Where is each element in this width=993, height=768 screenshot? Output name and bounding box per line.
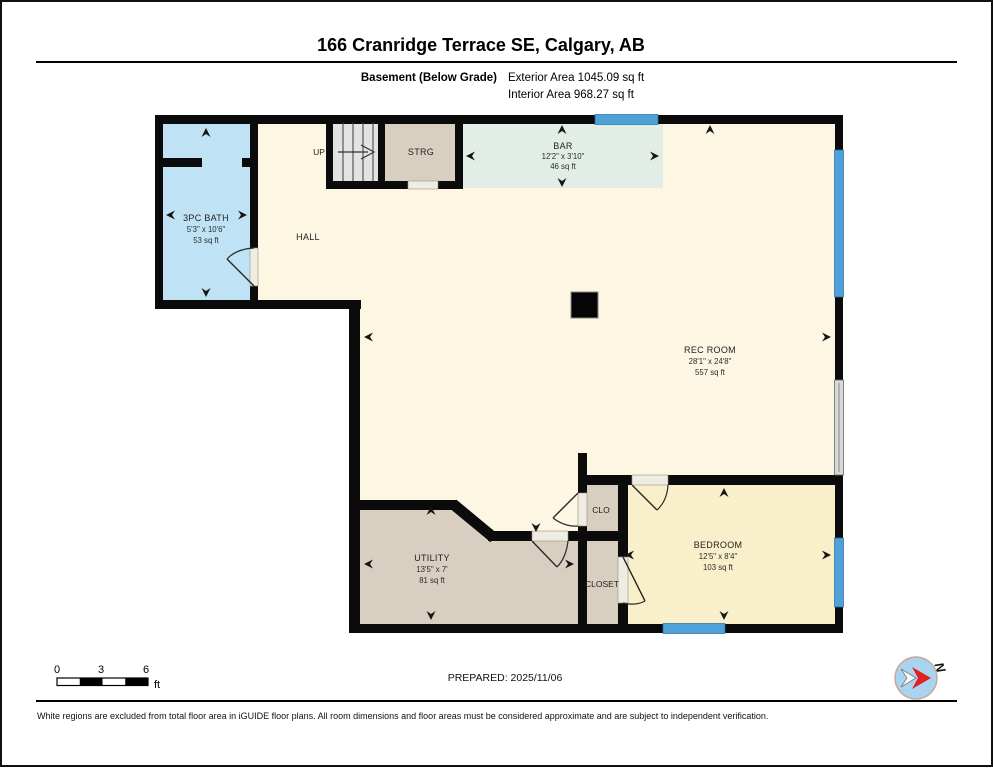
door-gap-bedroom: [632, 475, 668, 485]
scale-bar-segment: [80, 678, 103, 686]
wall-stairs-left: [326, 122, 333, 182]
bath-area: 53 sq ft: [193, 236, 219, 245]
scale-unit: ft: [154, 679, 160, 691]
wall-bath-stub-right: [242, 158, 258, 167]
wall-closet-right-upper: [618, 485, 628, 557]
strg-name: STRG: [408, 147, 434, 157]
scale-bar: 0 3 6 ft: [54, 664, 160, 691]
wall-closet-right-lower: [618, 603, 628, 633]
window-bedroom-bottom: [663, 624, 725, 634]
floor-label: Basement (Below Grade): [361, 72, 497, 84]
bath-dims: 5'3" x 10'6": [187, 225, 226, 234]
utility-name: UTILITY: [414, 553, 450, 563]
door-gap-clo: [578, 493, 587, 526]
wall-clo-left-upper: [578, 485, 587, 493]
bedroom-area: 103 sq ft: [703, 563, 734, 572]
wall-bath-right-lower: [250, 286, 258, 302]
door-gap-strg: [408, 181, 438, 189]
rec-room-name: REC ROOM: [684, 345, 736, 355]
bar-area: 46 sq ft: [550, 162, 576, 171]
prepared-date: PREPARED: 2025/11/06: [448, 672, 563, 684]
door-gap-utility: [532, 531, 568, 541]
floor-plan-page: 166 Cranridge Terrace SE, Calgary, AB Ba…: [0, 0, 993, 768]
wall-stairs-right: [378, 122, 385, 182]
bedroom-name: BEDROOM: [694, 540, 743, 550]
clo-name: CLO: [592, 505, 610, 515]
wall-bath-stub-left: [163, 158, 202, 167]
structural-post: [571, 292, 598, 318]
wall-clo-stub: [578, 453, 587, 477]
wall-bedroom-top-right: [668, 475, 835, 485]
wall-strg-bottom: [438, 181, 463, 189]
rec-room-dims: 28'1" x 24'8": [689, 357, 732, 366]
wall-strg-right: [455, 122, 463, 182]
scale-tick-3: 3: [98, 664, 104, 676]
compass-north-label: N: [931, 660, 949, 675]
wall-top: [155, 115, 843, 124]
wall-bottom: [349, 624, 843, 633]
bath-name: 3PC BATH: [183, 213, 229, 223]
wall-utility-top: [349, 500, 457, 510]
disclaimer-text: White regions are excluded from total fl…: [37, 711, 768, 721]
exterior-area-label: Exterior Area 1045.09 sq ft: [508, 72, 645, 84]
wall-mid-vertical: [349, 300, 360, 633]
hall-name: HALL: [296, 232, 320, 242]
scale-bar-segment: [125, 678, 148, 686]
closet-name: CLOSET: [585, 579, 619, 589]
utility-dims: 13'5" x 7': [416, 565, 448, 574]
bar-dims: 12'2" x 3'10": [542, 152, 585, 161]
door-gap-bath: [250, 248, 258, 286]
rec-room-area: 557 sq ft: [695, 368, 726, 377]
stairs-up-label: UP: [313, 147, 325, 157]
compass-icon: N: [895, 657, 949, 699]
interior-area-label: Interior Area 968.27 sq ft: [508, 89, 635, 101]
scale-tick-6: 6: [143, 664, 149, 676]
scale-tick-0: 0: [54, 664, 60, 676]
bar-name: BAR: [553, 141, 573, 151]
bath-floor: [163, 122, 250, 300]
header: 166 Cranridge Terrace SE, Calgary, AB Ba…: [36, 35, 957, 101]
window-rec-right: [835, 150, 844, 297]
bedroom-dims: 12'5" x 8'4": [699, 552, 738, 561]
wall-stairs-bottom: [326, 181, 408, 189]
page-title: 166 Cranridge Terrace SE, Calgary, AB: [317, 35, 645, 55]
wall-bath-right-upper: [250, 122, 258, 248]
wall-left: [155, 115, 163, 309]
window-top-wall: [595, 115, 658, 125]
utility-area: 81 sq ft: [419, 576, 445, 585]
window-bedroom-right: [835, 538, 844, 607]
